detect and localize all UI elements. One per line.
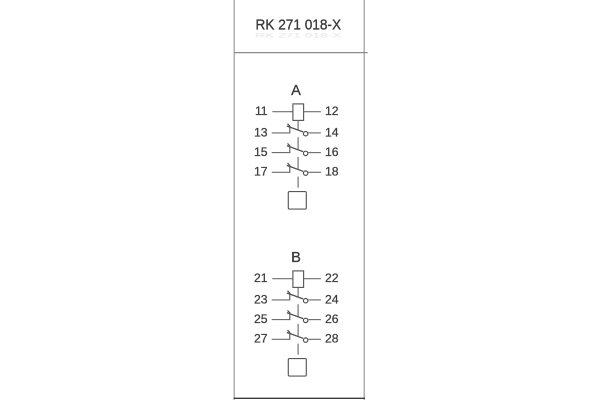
svg-text:22: 22 bbox=[325, 271, 339, 285]
svg-text:11: 11 bbox=[255, 104, 268, 118]
svg-text:24: 24 bbox=[325, 292, 339, 306]
svg-text:RK 271 018-X: RK 271 018-X bbox=[255, 32, 342, 39]
svg-text:18: 18 bbox=[325, 165, 339, 179]
svg-text:B: B bbox=[291, 250, 301, 266]
svg-text:27: 27 bbox=[254, 332, 268, 346]
svg-text:RK 271 018-X: RK 271 018-X bbox=[256, 18, 342, 34]
svg-text:26: 26 bbox=[325, 312, 339, 326]
svg-text:23: 23 bbox=[254, 292, 268, 306]
svg-text:A: A bbox=[291, 83, 301, 99]
svg-text:25: 25 bbox=[254, 312, 268, 326]
svg-text:15: 15 bbox=[254, 145, 268, 159]
svg-text:13: 13 bbox=[254, 125, 268, 139]
svg-text:21: 21 bbox=[254, 271, 268, 285]
svg-text:16: 16 bbox=[325, 145, 339, 159]
svg-text:12: 12 bbox=[325, 104, 339, 118]
svg-text:14: 14 bbox=[325, 125, 339, 139]
svg-text:17: 17 bbox=[254, 165, 268, 179]
svg-text:28: 28 bbox=[325, 332, 339, 346]
